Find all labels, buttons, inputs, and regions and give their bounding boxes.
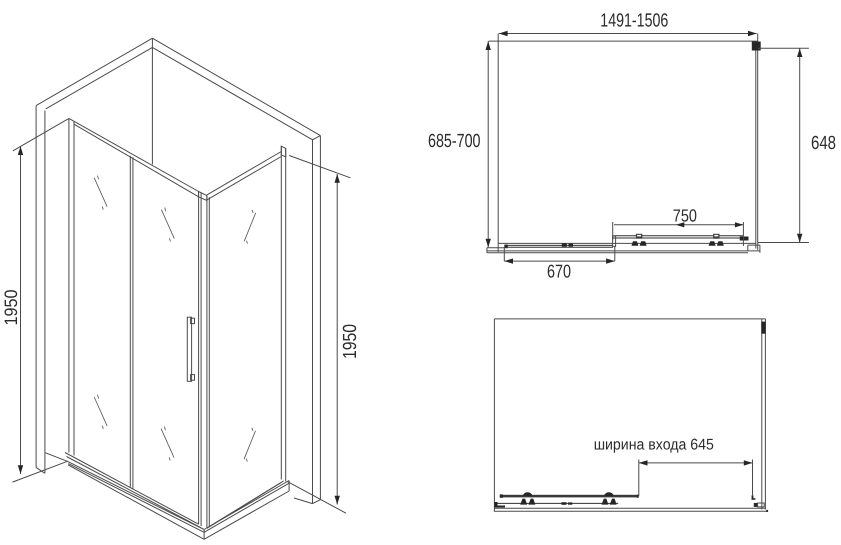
svg-text:750: 750 [673, 206, 697, 226]
svg-text:ширина входа 645: ширина входа 645 [594, 437, 714, 454]
svg-text:1491-1506: 1491-1506 [600, 10, 668, 31]
svg-text:1950: 1950 [1, 290, 21, 326]
svg-text:1950: 1950 [340, 324, 361, 359]
svg-text:685-700: 685-700 [428, 131, 481, 152]
svg-text:670: 670 [547, 261, 571, 282]
svg-text:648: 648 [811, 133, 836, 154]
